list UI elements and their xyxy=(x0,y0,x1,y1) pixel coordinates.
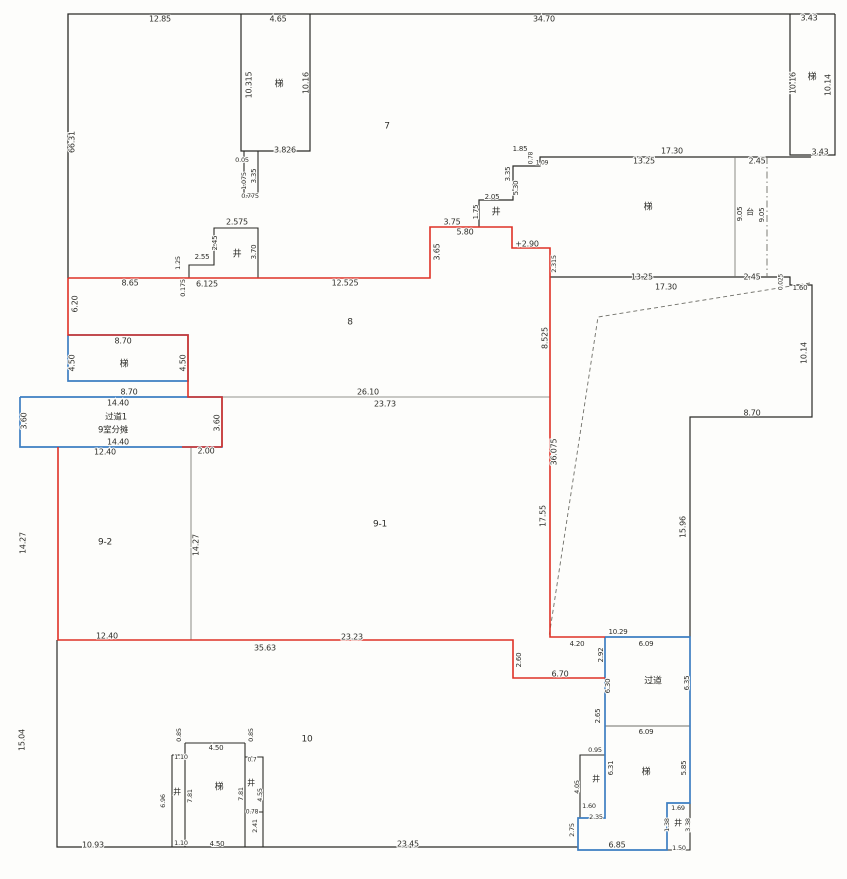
dimension-label: 5.85 xyxy=(680,761,688,776)
dimension-label: 12.40 xyxy=(94,448,116,457)
dimension-label: 6.31 xyxy=(607,761,615,776)
dimension-label: 35.63 xyxy=(254,644,276,653)
room-label: 梯 xyxy=(215,781,224,793)
room-label: 梯 xyxy=(808,71,817,83)
dimension-label: 14.40 xyxy=(107,399,129,408)
dimension-label: 3.826 xyxy=(274,146,296,155)
dimension-label: 6.09 xyxy=(639,640,654,648)
dimension-label: 1.50 xyxy=(672,844,686,852)
room-label: 9-1 xyxy=(373,520,387,530)
dimension-label: 23.23 xyxy=(341,633,363,642)
dimension-label: 0.85 xyxy=(175,728,183,742)
dimension-label: 3.65 xyxy=(433,243,442,260)
dimension-label: 17.30 xyxy=(661,147,683,156)
dimension-label: 6.35 xyxy=(683,676,691,691)
room-label: 9室分摊 xyxy=(98,425,129,436)
dimension-label: 6.70 xyxy=(551,670,568,679)
room-label: 井 xyxy=(592,774,600,784)
room-label: 过道 xyxy=(644,675,662,687)
dimension-label: 3.70 xyxy=(250,245,258,260)
dimension-label: 13.25 xyxy=(633,157,655,166)
dimension-label: 9.05 xyxy=(736,207,744,222)
dimension-label: 14.27 xyxy=(19,532,28,554)
dimension-label: 6.125 xyxy=(196,280,218,289)
dimension-label: 2.92 xyxy=(597,648,605,663)
dimension-label: +2.90 xyxy=(515,240,539,249)
room-label: 8 xyxy=(347,318,353,328)
dimension-label: 10.14 xyxy=(800,342,809,364)
room-label: 10 xyxy=(301,735,313,745)
dimension-label: 4.50 xyxy=(179,354,188,371)
dimension-label: 8.70 xyxy=(114,337,131,346)
dimension-label: 0.7 xyxy=(248,757,257,764)
room-label: 井 xyxy=(674,818,682,828)
dimension-label: 2.75 xyxy=(568,823,576,837)
dimension-label: 10.29 xyxy=(608,628,627,636)
dimension-label: 26.10 xyxy=(357,388,379,397)
room-label: 梯 xyxy=(642,766,651,778)
dimension-label: 3.60 xyxy=(20,412,29,429)
dimension-label: 12.85 xyxy=(149,15,171,24)
dimension-label: 2.00 xyxy=(197,447,214,456)
dimension-label: 12.40 xyxy=(96,632,118,641)
dimension-label: 12.525 xyxy=(332,279,359,288)
floor-plan-sheet: 12.854.6534.703.4366.3110.315梯10.16梯10.1… xyxy=(0,0,847,879)
dimension-label: 2.55 xyxy=(195,253,210,261)
dimension-label: 1.38 xyxy=(663,818,671,832)
dimension-label: 14.40 xyxy=(107,438,129,447)
dimension-label: 4.50 xyxy=(68,354,77,371)
dimension-label: 10.16 xyxy=(789,72,798,94)
survey-tie-line xyxy=(549,283,810,637)
dimension-label: 7.81 xyxy=(186,789,194,803)
dimension-label: 23.73 xyxy=(374,400,396,409)
dimension-label: 2.315 xyxy=(550,255,558,273)
dimension-label: 6.96 xyxy=(159,794,167,808)
dimension-label: 9.05 xyxy=(758,208,766,223)
room-label: 梯 xyxy=(120,358,129,370)
dimension-label: 2.45 xyxy=(748,157,765,166)
dimension-label: 4.20 xyxy=(570,640,585,648)
room-label: 梯 xyxy=(644,201,653,213)
dimension-label: 1.75 xyxy=(472,205,480,220)
dimension-label: 1.10 xyxy=(174,753,188,761)
dimension-label: 3.75 xyxy=(443,218,460,227)
dimension-label: 6.20 xyxy=(71,295,80,312)
dimension-label: 2.41 xyxy=(251,819,259,833)
room-label: 7 xyxy=(384,122,390,132)
dimension-label: 10.93 xyxy=(82,841,104,850)
dimension-label: 3.35 xyxy=(504,167,512,182)
dimension-label: 4.55 xyxy=(256,788,264,802)
dimension-label: 2.60 xyxy=(515,653,523,668)
dimension-label: 2.575 xyxy=(226,218,248,227)
dimension-label: 17.30 xyxy=(655,283,677,292)
room-label: 过道1 xyxy=(105,412,127,423)
parcel9-west-red xyxy=(68,278,222,447)
dimension-label: 0.78 xyxy=(246,809,259,816)
dimension-label: 2.65 xyxy=(594,709,602,724)
east-boundary-mid xyxy=(550,277,812,637)
dimension-label: 1.60 xyxy=(793,284,808,292)
parcel9-south-red xyxy=(58,447,605,678)
dimension-label: 1.075 xyxy=(240,172,248,190)
dimension-label: 3.43 xyxy=(811,148,828,157)
dimension-label: 8.65 xyxy=(121,279,138,288)
room-label: 井 xyxy=(233,248,242,260)
dimension-label: 15.04 xyxy=(18,729,27,751)
dimension-label: 0.775 xyxy=(241,192,259,200)
dimension-label: 4.50 xyxy=(210,840,225,848)
dimension-label: 7.81 xyxy=(237,787,245,801)
dimension-label: 15.96 xyxy=(679,516,688,538)
dimension-label: 6.85 xyxy=(608,841,625,850)
outer-top-left-boundary xyxy=(68,14,835,278)
dimension-label: 6.09 xyxy=(639,728,654,736)
dimension-label: 1.09 xyxy=(536,160,549,167)
room-label: 台 xyxy=(746,207,754,217)
dimension-label: 5.30 xyxy=(512,181,520,196)
dimension-label: 0.78 xyxy=(528,151,535,164)
dimension-label: 13.25 xyxy=(631,273,653,282)
dimension-label: 2.45 xyxy=(211,236,219,251)
dimension-label: 66.31 xyxy=(68,131,77,153)
room-label: 井 xyxy=(492,206,501,218)
dimension-label: 0.175 xyxy=(179,279,187,297)
dimension-label: 6.30 xyxy=(604,679,612,694)
dimension-label: 1.85 xyxy=(513,145,528,153)
room-label: 梯 xyxy=(275,78,284,90)
dimension-label: 0.95 xyxy=(588,746,602,754)
dimension-label: 1.60 xyxy=(582,802,596,810)
dimension-label: 2.05 xyxy=(485,193,500,201)
dimension-label: 4.50 xyxy=(209,744,224,752)
room-label: 井 xyxy=(173,787,181,797)
room-label: 井 xyxy=(247,778,255,788)
dimension-label: 34.70 xyxy=(533,15,555,24)
dimension-label: 0.05 xyxy=(235,156,249,164)
dimension-label: 3.43 xyxy=(800,14,817,23)
dimension-label: 0.85 xyxy=(247,728,255,742)
dimension-label: 8.525 xyxy=(541,327,550,349)
dimension-label: 1.25 xyxy=(174,256,182,270)
dimension-label: 2.35 xyxy=(589,813,603,821)
room-label: 9-2 xyxy=(98,538,112,548)
floor-plan-svg: 12.854.6534.703.4366.3110.315梯10.16梯10.1… xyxy=(0,0,847,879)
dimension-label: 10.14 xyxy=(824,74,833,96)
dimension-label: 1.69 xyxy=(671,804,685,812)
dimension-label: 3.60 xyxy=(213,414,222,431)
dimension-label: 3.38 xyxy=(684,818,692,832)
dimension-label: 0.025 xyxy=(778,274,785,291)
dimension-label: 1.10 xyxy=(174,839,188,847)
parcel9-north-red xyxy=(68,227,605,637)
dimension-label: 10.315 xyxy=(245,71,254,98)
dimension-label: 3.35 xyxy=(250,169,258,184)
dimension-label: 4.05 xyxy=(573,780,581,794)
dimension-label: 2.45 xyxy=(743,273,760,282)
dimension-label: 8.70 xyxy=(120,388,137,397)
dimension-label: 23.45 xyxy=(397,840,419,849)
dimension-label: 17.55 xyxy=(539,505,548,527)
dimension-label: 14.27 xyxy=(192,534,201,556)
dimension-label: 36.075 xyxy=(550,438,559,465)
dimension-label: 8.70 xyxy=(743,409,760,418)
dimension-label: 4.65 xyxy=(269,15,286,24)
dimension-label: 5.80 xyxy=(456,228,473,237)
dimension-label: 10.16 xyxy=(302,72,311,94)
south-west-boundary xyxy=(57,640,578,847)
